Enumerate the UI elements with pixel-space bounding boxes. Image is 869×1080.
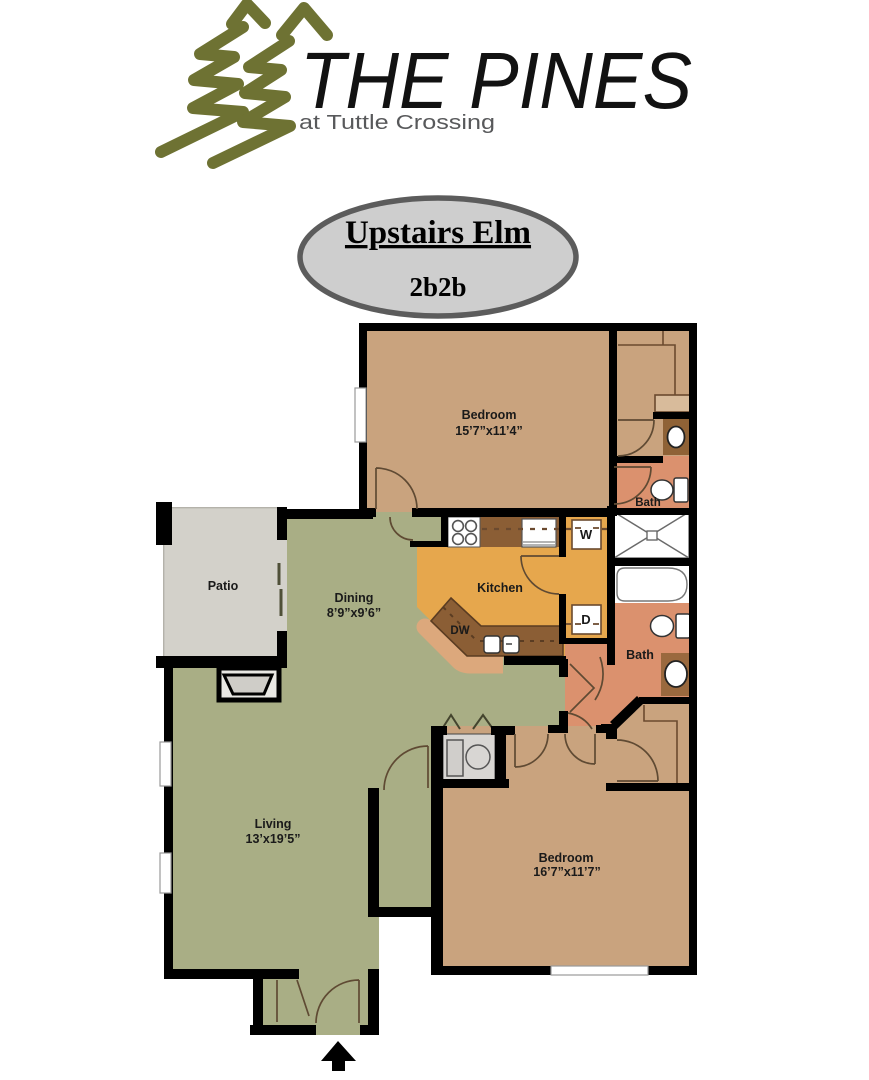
svg-text:Kitchen: Kitchen [477,581,523,595]
svg-text:at Tuttle Crossing: at Tuttle Crossing [299,112,495,134]
svg-text:13’x19’5”: 13’x19’5” [246,832,301,846]
svg-text:D: D [581,612,590,627]
svg-text:Bedroom: Bedroom [539,851,594,865]
svg-text:16’7”x11’7”: 16’7”x11’7” [533,865,600,879]
svg-text:Bedroom: Bedroom [462,408,517,422]
svg-text:Living: Living [255,817,292,831]
svg-text:8’9”x9’6”: 8’9”x9’6” [327,606,381,620]
svg-text:W: W [580,527,593,542]
svg-text:Upstairs Elm: Upstairs Elm [345,215,531,251]
svg-text:Bath: Bath [626,648,654,662]
svg-text:DW: DW [450,625,469,637]
svg-text:Bath: Bath [635,497,661,509]
svg-text:15’7”x11’4”: 15’7”x11’4” [455,424,522,438]
svg-text:Patio: Patio [208,579,239,593]
svg-text:2b2b: 2b2b [409,272,466,302]
svg-text:Dining: Dining [335,591,374,605]
